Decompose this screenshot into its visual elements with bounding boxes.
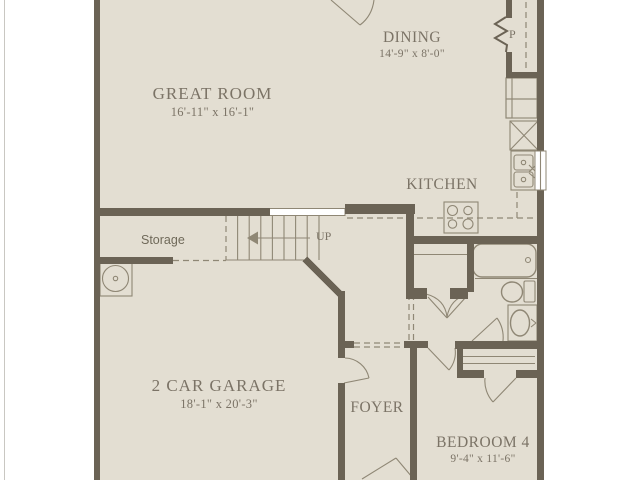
bedroom-closet-left-wall — [457, 349, 463, 370]
bedroom-closet-bottom-left — [457, 370, 484, 378]
room-label-bedroom4: BEDROOM 4 9'-4" x 11'-6" — [423, 434, 543, 466]
great-room-dims: 16'-11" x 16'-1" — [130, 105, 295, 119]
stairs-up-label: UP — [316, 229, 331, 244]
great-room-stairs-wall — [94, 208, 270, 216]
foyer-stub-left — [338, 341, 354, 348]
garage-foyer-wall-lower — [338, 383, 345, 480]
hall-closet-stub-right — [450, 288, 468, 299]
room-label-kitchen: KITCHEN — [392, 176, 492, 193]
pantry-label: P — [509, 27, 516, 42]
kitchen-peninsula-wall — [345, 204, 415, 214]
left-exterior-wall — [94, 0, 100, 480]
bath-left-wall — [467, 236, 474, 292]
room-label-great-room: GREAT ROOM 16'-11" x 16'-1" — [130, 84, 295, 119]
pantry-bottom-wall — [506, 72, 544, 78]
room-label-dining: DINING 14'-9" x 8'-0" — [362, 29, 462, 61]
floor-plan-page: GREAT ROOM 16'-11" x 16'-1" DINING 14'-9… — [0, 0, 640, 480]
great-room-name: GREAT ROOM — [130, 84, 295, 103]
bedroom4-name: BEDROOM 4 — [423, 434, 543, 451]
pantry-left-wall-top — [506, 0, 512, 18]
storage-label: Storage — [141, 233, 185, 247]
garage-name: 2 CAR GARAGE — [134, 376, 304, 395]
foyer-name: FOYER — [342, 399, 412, 416]
dining-dims: 14'-9" x 8'-0" — [362, 48, 462, 61]
bedroom-closet-bottom-right — [516, 370, 537, 378]
garage-dims: 18'-1" x 20'-3" — [134, 397, 304, 411]
room-label-garage: 2 CAR GARAGE 18'-1" x 20'-3" — [134, 376, 304, 411]
room-label-foyer: FOYER — [342, 399, 412, 416]
kitchen-window — [535, 151, 546, 190]
bath-bottom-wall — [455, 341, 544, 349]
kitchen-hall-wall — [406, 204, 414, 293]
storage-bottom-wall — [94, 257, 173, 264]
dining-name: DINING — [362, 29, 462, 46]
kitchen-name: KITCHEN — [392, 176, 492, 193]
hall-closet-stub-left — [406, 288, 427, 299]
stair-half-wall — [269, 209, 345, 216]
bedroom4-dims: 9'-4" x 11'-6" — [423, 453, 543, 466]
